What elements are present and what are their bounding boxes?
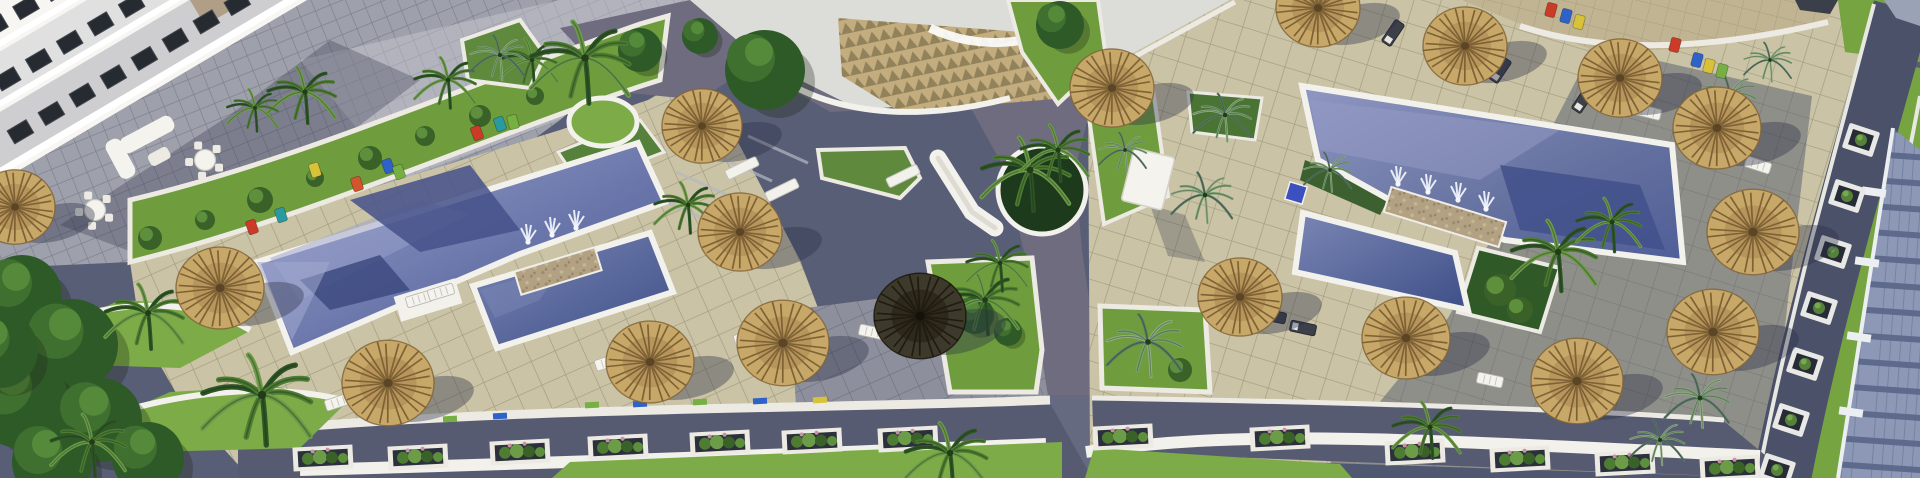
- wall-accent: [753, 398, 767, 405]
- planter-box: [1699, 454, 1760, 478]
- bush: [138, 226, 162, 250]
- planter-box: [1489, 445, 1550, 472]
- bush: [195, 210, 215, 230]
- planter-box: [1249, 424, 1310, 451]
- planter-box: [689, 429, 750, 456]
- render-canvas: [0, 0, 1920, 478]
- bush: [247, 187, 273, 213]
- planter-box: [292, 444, 353, 471]
- wall-accent: [443, 416, 457, 423]
- wall-accent: [693, 399, 707, 406]
- planter-box: [387, 443, 448, 470]
- planter-box: [587, 433, 648, 460]
- bush: [526, 87, 544, 105]
- wall-accent: [813, 397, 827, 404]
- round-planter-west: [569, 98, 637, 146]
- planter-box: [1384, 438, 1445, 465]
- planter-box: [489, 438, 550, 465]
- bush: [415, 126, 435, 146]
- bush: [1507, 297, 1533, 323]
- bush: [358, 146, 382, 170]
- crossing-hedge-east: [1100, 306, 1210, 392]
- wall-accent: [585, 402, 599, 409]
- planter-box: [1594, 449, 1655, 476]
- planter-box: [1092, 423, 1153, 450]
- planter-box: [781, 427, 842, 454]
- bush: [469, 105, 491, 127]
- resort-aerial-render: [0, 0, 1920, 478]
- wall-accent: [493, 413, 507, 420]
